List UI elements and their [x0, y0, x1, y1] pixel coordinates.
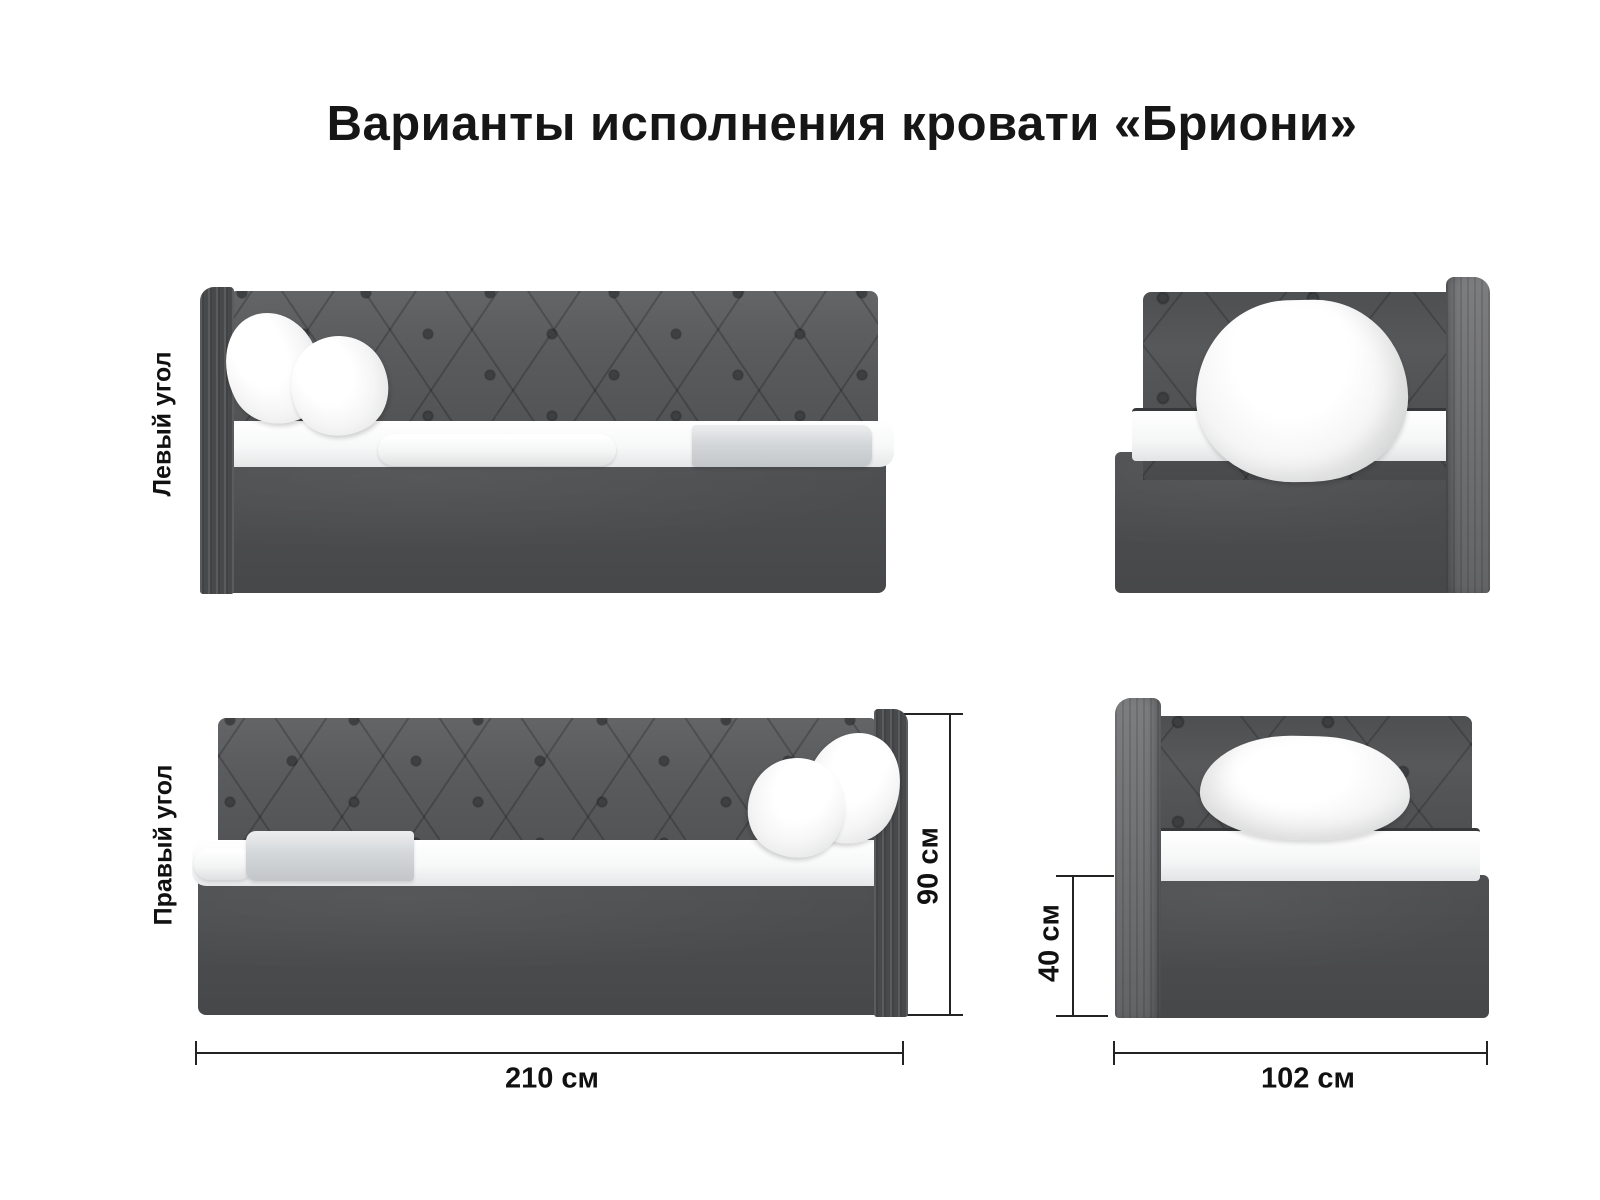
dimension-width-label: 102 см — [1261, 1063, 1355, 1096]
bed-base — [198, 878, 884, 1015]
side-panel — [1115, 698, 1161, 1018]
page-title: Варианты исполнения кровати «Бриони» — [0, 96, 1600, 152]
side-panel — [1446, 277, 1490, 593]
rolled-blanket — [194, 848, 254, 880]
label-left-corner: Левый угол — [149, 352, 178, 497]
dimension-tick — [902, 1041, 904, 1065]
dimension-tick — [1056, 875, 1114, 877]
dimension-tick — [195, 1041, 197, 1065]
bed-variants-diagram: Варианты исполнения кровати «Бриони» Лев… — [0, 0, 1600, 1200]
label-right-corner: Правый угол — [150, 765, 179, 926]
folded-blanket — [246, 831, 414, 881]
dimension-base-height-label: 40 см — [1034, 904, 1067, 982]
folded-blanket — [692, 425, 872, 467]
dimension-tick — [903, 713, 963, 715]
dimension-tick — [1113, 1041, 1115, 1065]
dimension-line — [1072, 876, 1074, 1017]
side-panel-edge — [200, 287, 234, 594]
dimension-total-height-label: 90 см — [913, 827, 946, 905]
pillow — [1194, 298, 1409, 484]
dimension-tick — [903, 1014, 963, 1016]
bed-base — [1117, 875, 1489, 1018]
dimension-length-label: 210 см — [505, 1063, 599, 1096]
dimension-line — [1114, 1052, 1488, 1054]
rolled-blanket — [378, 434, 616, 466]
dimension-tick — [1056, 1015, 1108, 1017]
dimension-line — [949, 714, 951, 1016]
dimension-line — [196, 1052, 904, 1054]
bed-base — [222, 458, 886, 593]
dimension-tick — [1486, 1041, 1488, 1065]
